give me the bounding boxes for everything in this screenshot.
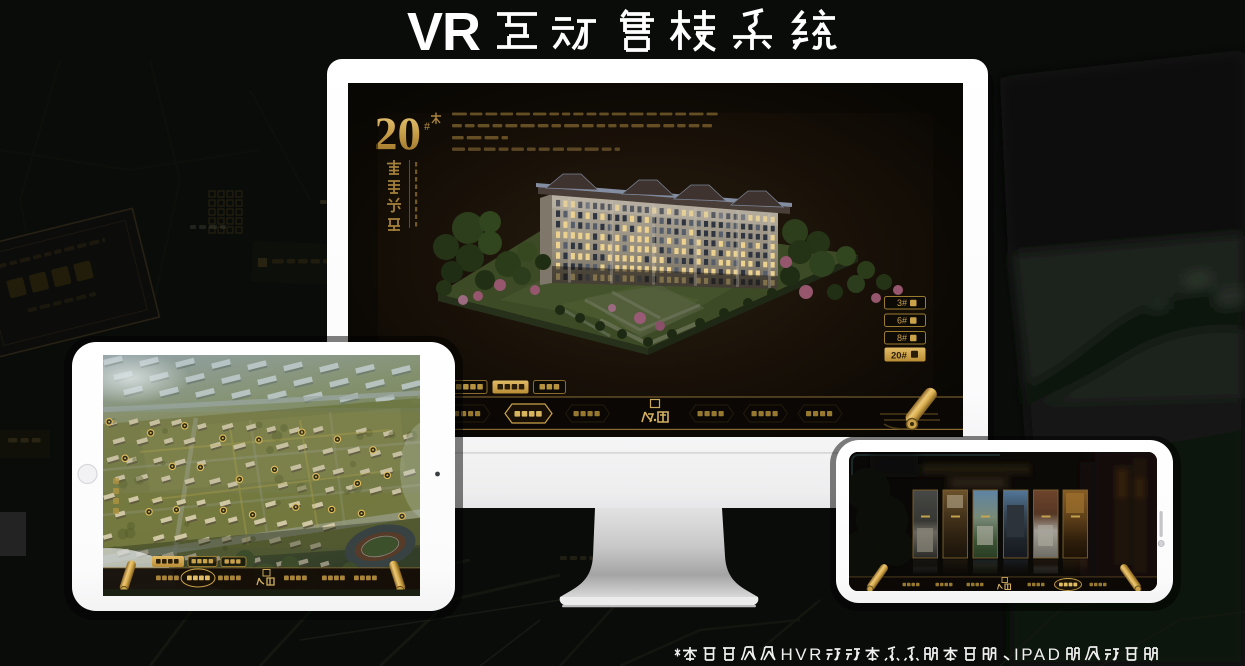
svg-text:IPAD: IPAD (1014, 645, 1062, 664)
svg-text:HVR: HVR (781, 645, 824, 664)
svg-text:VR: VR (407, 2, 480, 62)
svg-text:6#: 6# (897, 316, 907, 326)
svg-text:20#: 20# (891, 351, 908, 362)
svg-text:3#: 3# (897, 298, 907, 308)
svg-text:20: 20 (374, 108, 421, 160)
svg-text:8#: 8# (897, 333, 907, 343)
svg-text:#: # (424, 119, 430, 133)
